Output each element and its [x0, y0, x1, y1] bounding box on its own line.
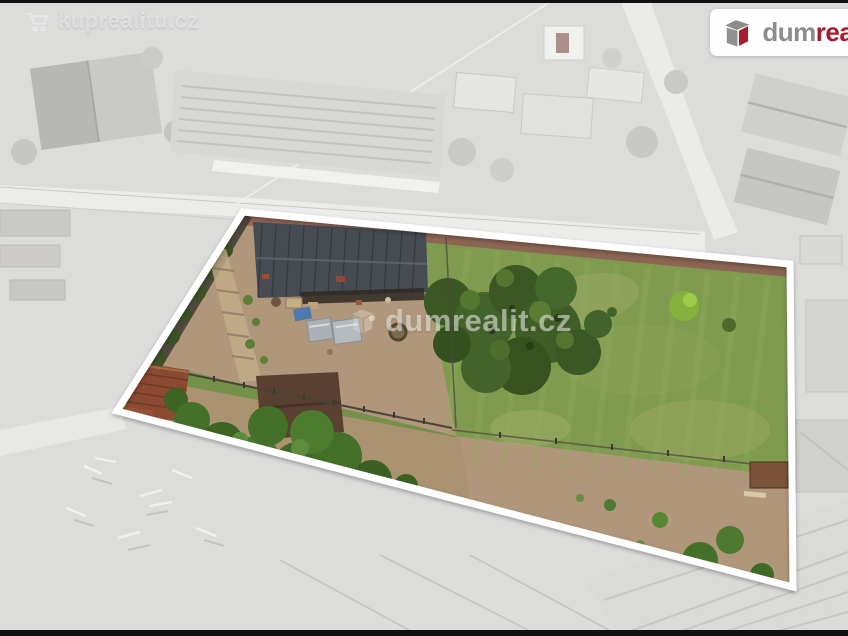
listing-photo: kuprealitu.cz dumrealit.cz dumreal [0, 0, 848, 636]
dumrealit-box-icon [723, 15, 753, 51]
watermark-text: dumrealit.cz [385, 303, 572, 339]
brand-badge-dumrealit: dumreal [710, 9, 848, 56]
watermark-kuprealitu: kuprealitu.cz [26, 8, 199, 34]
frame-bar-bottom [0, 630, 848, 636]
shopping-cart-icon [26, 9, 51, 34]
barn-roof [253, 222, 428, 304]
dumrealit-box-icon [350, 302, 377, 340]
watermark-dumrealit: dumrealit.cz [350, 302, 572, 340]
brand-text-gray: dum [762, 17, 815, 47]
brand-wordmark: dumreal [762, 17, 848, 48]
watermark-text: kuprealitu.cz [58, 8, 199, 34]
brand-text-red: real [816, 17, 848, 47]
frame-bar-top [0, 0, 848, 3]
white-shed [544, 26, 584, 60]
